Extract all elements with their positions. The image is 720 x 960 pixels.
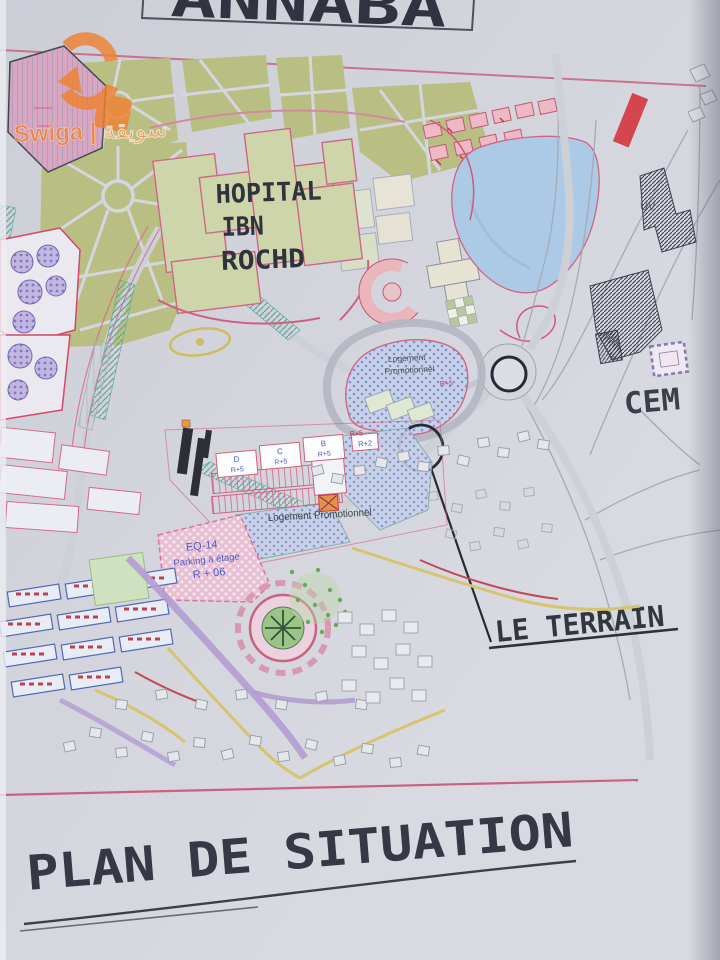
block-b-name: B bbox=[320, 439, 326, 448]
block-b-floors: R+5 bbox=[318, 451, 332, 459]
photographed-plan: HOPITAL IBN ROCHD UV CEM bbox=[0, 0, 720, 960]
block-c-name: C bbox=[277, 447, 284, 456]
situation-plan-canvas: HOPITAL IBN ROCHD UV CEM bbox=[0, 0, 720, 960]
floor-mark-upper: R+5 bbox=[440, 380, 453, 388]
logement-upper-line1: Logement bbox=[388, 352, 427, 364]
hospital-label-line3: ROCHD bbox=[221, 244, 306, 277]
cem-label: CEM bbox=[623, 382, 682, 422]
floor-mark-lower: R+5 bbox=[350, 430, 363, 438]
hospital-label-line1: HOPITAL bbox=[215, 176, 322, 210]
photo-left-edge bbox=[0, 0, 6, 960]
castle-building bbox=[650, 342, 688, 376]
block-d-name: D bbox=[233, 455, 240, 464]
hospital-label-line2: IBN bbox=[221, 211, 264, 242]
block-d-floors: R+5 bbox=[231, 466, 245, 474]
photo-right-edge-shadow bbox=[688, 0, 720, 960]
roundabout bbox=[480, 344, 536, 400]
annex-floors-label: R+2 bbox=[358, 438, 373, 448]
block-c-floors: R+5 bbox=[274, 458, 288, 466]
uv-label: UV bbox=[640, 201, 656, 213]
